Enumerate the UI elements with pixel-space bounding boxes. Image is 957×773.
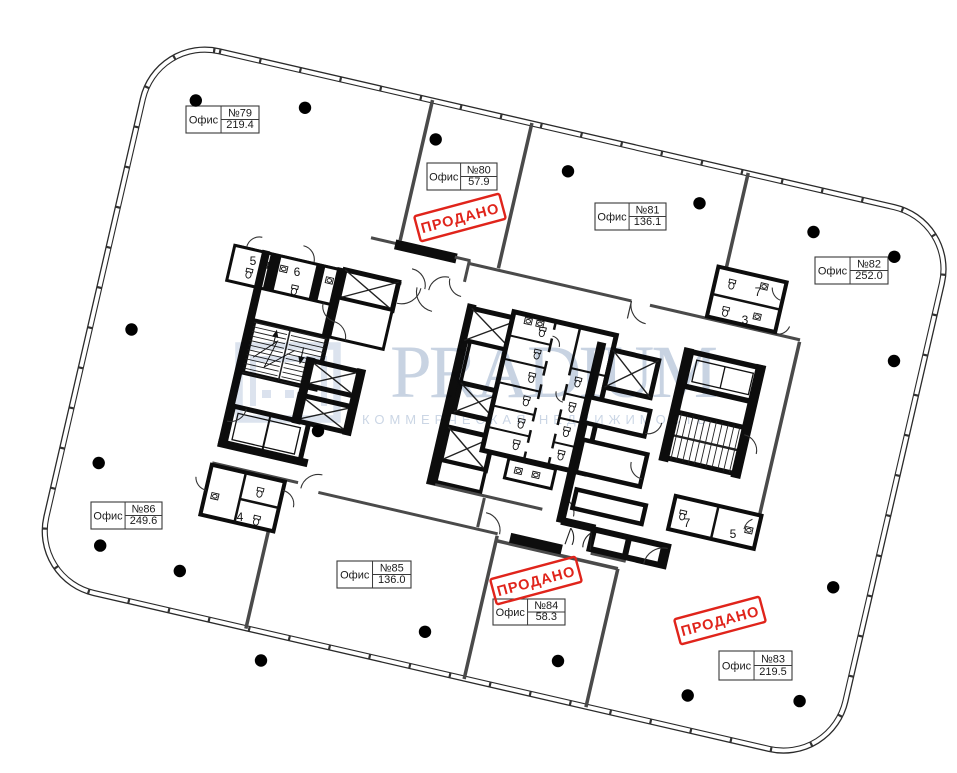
svg-text:4: 4 [237, 510, 244, 524]
svg-text:3: 3 [742, 313, 749, 327]
svg-text:7: 7 [755, 285, 762, 299]
svg-text:5: 5 [730, 527, 737, 541]
svg-text:58.3: 58.3 [536, 611, 557, 623]
svg-text:136.1: 136.1 [634, 216, 662, 228]
svg-text:№83: №83 [761, 654, 785, 666]
svg-text:№82: №82 [857, 259, 881, 271]
svg-text:57.9: 57.9 [468, 176, 489, 188]
svg-text:№81: №81 [636, 205, 660, 217]
svg-text:Офис: Офис [93, 511, 123, 523]
svg-text:Офис: Офис [429, 172, 459, 184]
svg-text:7: 7 [684, 516, 691, 530]
svg-text:219.4: 219.4 [226, 119, 254, 131]
svg-text:5: 5 [250, 254, 257, 268]
svg-text:PRADIUM: PRADIUM [390, 331, 718, 414]
svg-text:КОММЕРЧЕСКАЯ НЕДВИЖИМОСТЬ: КОММЕРЧЕСКАЯ НЕДВИЖИМОСТЬ [362, 412, 710, 427]
svg-text:Офис: Офис [496, 607, 526, 619]
svg-text:№80: №80 [467, 165, 491, 177]
svg-text:Офис: Офис [340, 570, 370, 582]
svg-text:Офис: Офис [722, 661, 752, 673]
svg-text:Офис: Офис [597, 212, 627, 224]
svg-text:Офис: Офис [189, 115, 219, 127]
svg-text:6: 6 [294, 265, 301, 279]
svg-text:Офис: Офис [818, 266, 848, 278]
svg-text:249.6: 249.6 [130, 515, 158, 527]
svg-text:№85: №85 [380, 563, 404, 575]
svg-text:№79: №79 [228, 108, 252, 120]
svg-text:136.0: 136.0 [378, 574, 406, 586]
svg-text:№86: №86 [132, 504, 156, 516]
svg-text:219.5: 219.5 [759, 666, 787, 678]
svg-text:252.0: 252.0 [855, 270, 883, 282]
